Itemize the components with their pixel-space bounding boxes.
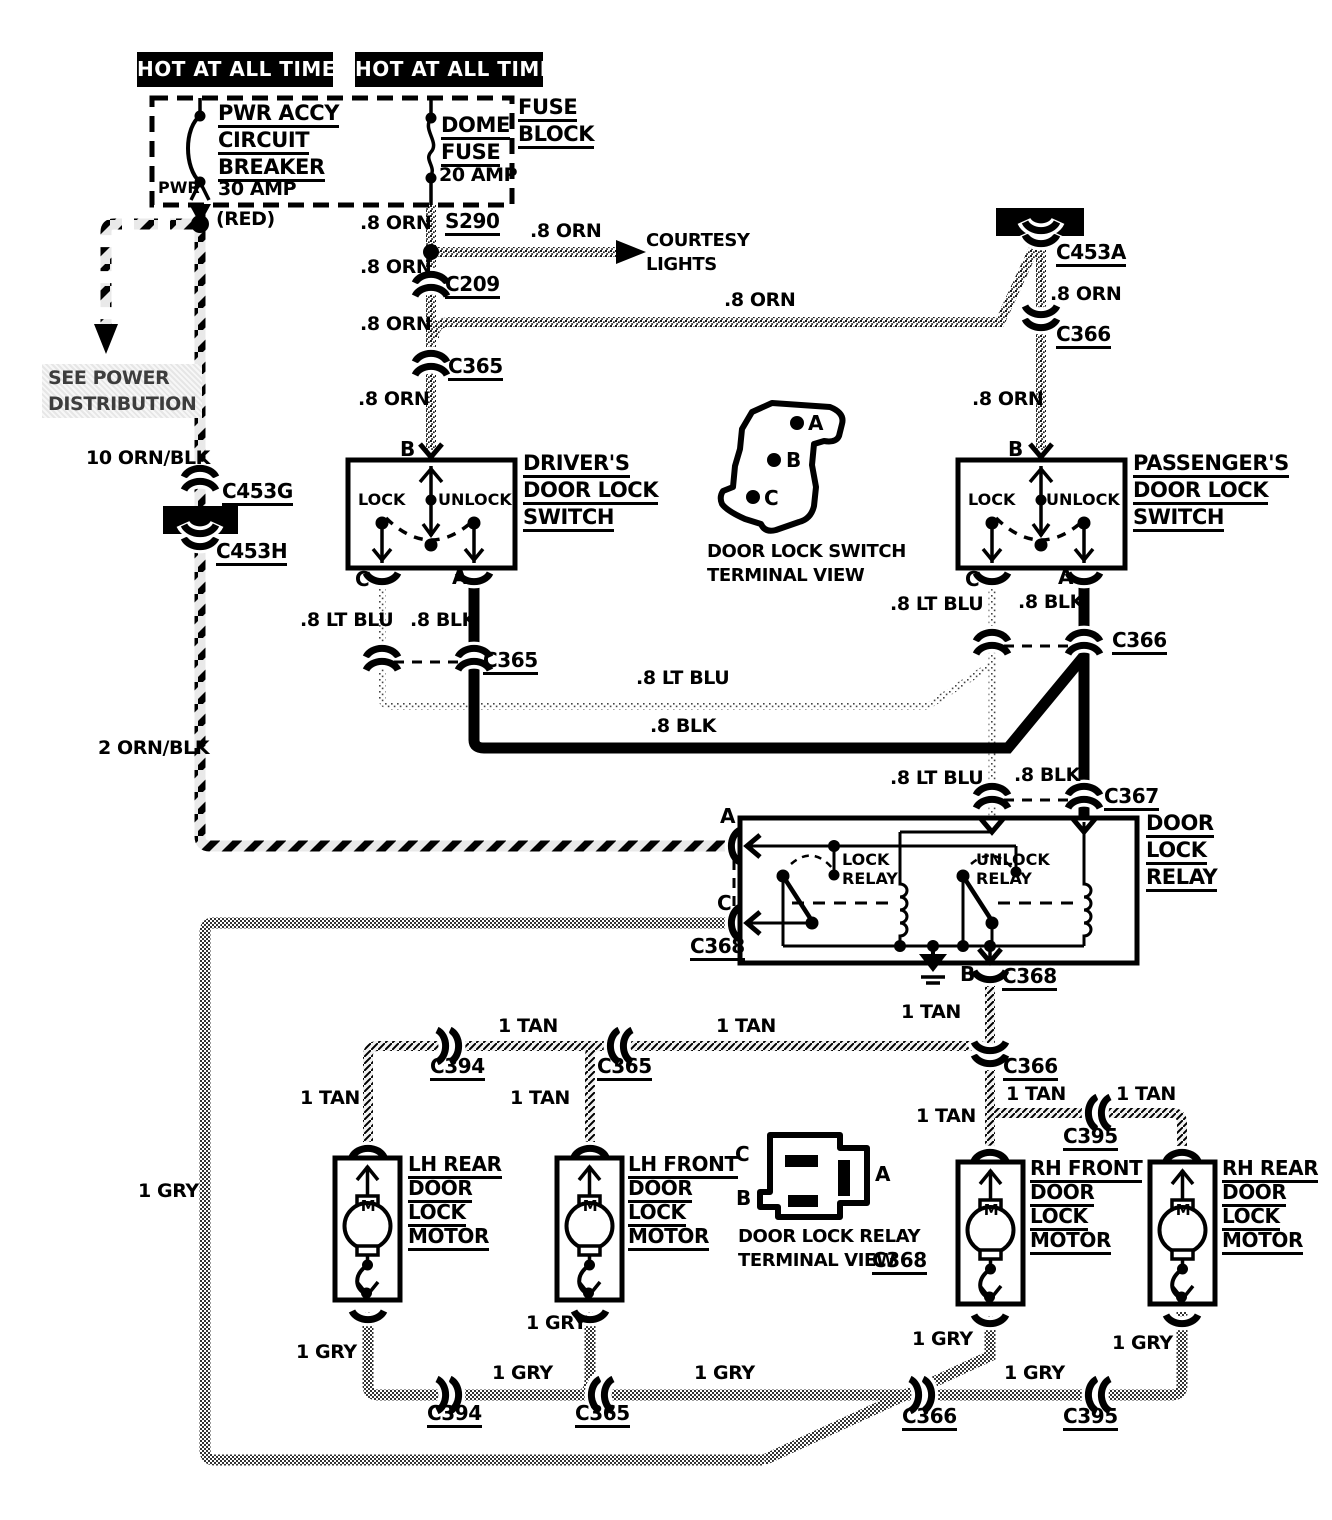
relay-terminal-b-text: B (960, 962, 975, 986)
wire-gry-6: 1 GRY (492, 1362, 553, 1384)
wire-gry-3-text: 1 GRY (526, 1312, 587, 1334)
connector-c453a-text: C453A (1056, 240, 1126, 267)
wire-blk-4: .8 BLK (1014, 764, 1080, 786)
unlock-relay-label: UNLOCKRELAY (976, 850, 1050, 888)
wire-tan-2-text: 1 TAN (498, 1015, 558, 1037)
lh-front-motor-label-text: MOTOR (628, 1224, 709, 1251)
wire-tan-2: 1 TAN (498, 1015, 558, 1037)
wire-gry-4: 1 GRY (912, 1328, 973, 1350)
wire-tan-5-text: 1 TAN (510, 1087, 570, 1109)
relay-terminal-b: B (960, 963, 975, 985)
rh-front-motor-label-text: LOCK (1030, 1204, 1088, 1231)
wire-tan-6-text: 1 TAN (916, 1105, 976, 1127)
drivers-lock-label: LOCK (358, 490, 405, 509)
connector-c453h: C453H (216, 540, 287, 562)
wire-tan-8: 1 TAN (1116, 1083, 1176, 1105)
passengers-lock-label-text: LOCK (968, 490, 1015, 509)
wire-orn-6-text: .8 ORN (358, 388, 429, 410)
wire-gry-8: 1 GRY (1004, 1362, 1065, 1384)
wire-blk-2: .8 BLK (650, 715, 716, 737)
pwr-label: PWR (158, 178, 200, 197)
wire-tan-7-text: 1 TAN (1006, 1083, 1066, 1105)
dome-fuse-label: DOMEFUSE (441, 112, 510, 166)
fuse-block-label-text: BLOCK (518, 122, 594, 149)
wire-tan-5: 1 TAN (510, 1087, 570, 1109)
lock-relay-label: LOCKRELAY (842, 850, 898, 888)
wire-orn-7: .8 ORN (1050, 283, 1121, 305)
connector-c395-gry-text: C395 (1063, 1404, 1118, 1431)
connector-c394-gry-text: C394 (427, 1401, 482, 1428)
relay-terminal-a: A (720, 805, 735, 827)
connector-c368-left-text: C368 (690, 934, 745, 961)
wire-orn-2: .8 ORN (530, 220, 601, 242)
wire-orn-7-text: .8 ORN (1050, 283, 1121, 305)
rh-rear-motor-label-text: LOCK (1222, 1204, 1280, 1231)
dome-fuse-rating-text: 20 AMP (439, 164, 517, 186)
lock-relay-label-text: RELAY (842, 869, 898, 888)
passengers-switch-label: PASSENGER'SDOOR LOCKSWITCH (1133, 450, 1289, 531)
drivers-switch-label-text: SWITCH (523, 505, 614, 532)
wire-gry-3: 1 GRY (526, 1312, 587, 1334)
connector-c394-tan-text: C394 (430, 1054, 485, 1081)
wiring-diagram-canvas (0, 0, 1332, 1520)
wire-ltblu-3-text: .8 LT BLU (890, 593, 983, 615)
passengers-terminal-c: C (965, 568, 979, 590)
terminal-view-b: B (786, 449, 801, 471)
hot-at-all-times-left-text: HOT AT ALL TIMES (137, 57, 351, 81)
door-lock-relay-label-text: LOCK (1146, 838, 1207, 865)
door-lock-relay (740, 818, 1137, 983)
door-lock-relay-label-text: DOOR (1146, 811, 1214, 838)
passengers-unlock-label: UNLOCK (1046, 490, 1120, 509)
lh-front-motor-m: M (581, 1195, 599, 1217)
terminal-view-c: C (764, 487, 778, 509)
wire-orn-8: .8 ORN (972, 388, 1043, 410)
wire-tan-3-text: 1 TAN (716, 1015, 776, 1037)
splice-s290: S290 (445, 210, 500, 232)
wire-tan-8-text: 1 TAN (1116, 1083, 1176, 1105)
lh-front-motor-m-text: M (583, 1197, 598, 1215)
wire-orn-5: .8 ORN (724, 289, 795, 311)
drivers-switch-label-text: DRIVER'S (523, 451, 630, 478)
drivers-terminal-a-text: A (452, 565, 467, 589)
wire-gry-7-text: 1 GRY (694, 1362, 755, 1384)
connector-c453g: C453G (222, 480, 293, 502)
lh-front-motor-label-text: LOCK (628, 1200, 686, 1227)
red-wire-note: (RED) (216, 208, 275, 230)
connector-c209-text: C209 (445, 272, 500, 299)
courtesy-lights-label-text: COURTESY (646, 230, 750, 251)
connector-c366-orn: C366 (1056, 323, 1111, 345)
connector-c366-tan: C366 (1003, 1055, 1058, 1077)
connector-c365-tan: C365 (597, 1055, 652, 1077)
wire-ltblu-4-text: .8 LT BLU (890, 767, 983, 789)
courtesy-lights-label-text: LIGHTS (646, 254, 717, 275)
terminal-view-a: A (808, 412, 823, 434)
wire-blk-3: .8 BLK (1018, 591, 1084, 613)
connector-c365-tan-text: C365 (597, 1054, 652, 1081)
wire-ltblu-4: .8 LT BLU (890, 767, 983, 789)
see-power-distribution: SEE POWERDISTRIBUTION (42, 364, 202, 418)
lh-front-door-lock-motor (557, 1158, 622, 1300)
relay-view-b: B (736, 1187, 751, 1209)
rh-front-motor-m-text: M (984, 1201, 999, 1219)
drivers-terminal-b: B (400, 438, 415, 460)
breaker-rating-text: 30 AMP (218, 178, 296, 200)
rh-front-motor-label-text: MOTOR (1030, 1228, 1111, 1255)
door-lock-switch-terminal-view (721, 403, 843, 531)
drivers-switch-label-text: DOOR LOCK (523, 478, 658, 505)
wire-gry-2-text: 1 GRY (296, 1341, 357, 1363)
fuse-block-label-text: FUSE (518, 95, 577, 122)
connector-c366-switch: C366 (1112, 629, 1167, 651)
lh-rear-motor-label-text: LOCK (408, 1200, 466, 1227)
passengers-terminal-b-text: B (1008, 437, 1023, 461)
connector-c453h-text: C453H (216, 539, 287, 566)
wire-tan-7: 1 TAN (1006, 1083, 1066, 1105)
wire-tan-1: 1 TAN (901, 1001, 961, 1023)
pwr-accy-breaker-label-text: PWR ACCY (218, 101, 339, 128)
wire-orn-5-text: .8 ORN (724, 289, 795, 311)
rh-front-door-lock-motor (958, 1162, 1023, 1304)
relay-terminal-view-c368-text: C368 (872, 1248, 927, 1275)
switch-terminal-view-caption-text: TERMINAL VIEW (707, 565, 864, 586)
rh-rear-door-lock-motor (1150, 1162, 1215, 1304)
relay-view-a-text: A (875, 1162, 890, 1186)
breaker-rating: 30 AMP (218, 178, 296, 200)
splice-s290-text: S290 (445, 209, 500, 236)
wire-ltblu-3: .8 LT BLU (890, 593, 983, 615)
connector-c365-switch: C365 (483, 649, 538, 671)
wire-orn-1-text: .8 ORN (360, 212, 431, 234)
terminal-view-b-text: B (786, 448, 801, 472)
wire-tan-6: 1 TAN (916, 1105, 976, 1127)
fuse-block-label: FUSEBLOCK (518, 94, 594, 148)
wire-gry-4-text: 1 GRY (912, 1328, 973, 1350)
wire-blk-3-text: .8 BLK (1018, 591, 1084, 613)
wire-blk-1-text: .8 BLK (410, 609, 476, 631)
relay-terminal-view-caption-1: DOOR LOCK RELAY (738, 1225, 920, 1249)
connector-c395-tan: C395 (1063, 1125, 1118, 1147)
passengers-terminal-a-text: A (1058, 565, 1073, 589)
wire-orn-1: .8 ORN (360, 212, 431, 234)
connector-c453a: C453A (1056, 241, 1126, 263)
wire-10-orn-blk: 10 ORN/BLK (86, 447, 210, 469)
rh-rear-motor-label-text: RH REAR (1222, 1156, 1318, 1183)
connector-c395-gry: C395 (1063, 1405, 1118, 1427)
wire-blk-4-text: .8 BLK (1014, 764, 1080, 786)
connector-c366-tan-text: C366 (1003, 1054, 1058, 1081)
switch-terminal-view-caption-text: DOOR LOCK SWITCH (707, 541, 906, 562)
rh-rear-motor-m-text: M (1176, 1201, 1191, 1219)
wire-orn-6: .8 ORN (358, 388, 429, 410)
passengers-lock-label: LOCK (968, 490, 1015, 509)
wire-2-orn-blk-text: 2 ORN/BLK (98, 737, 209, 759)
rh-front-motor-label: RH FRONTDOORLOCKMOTOR (1030, 1156, 1142, 1252)
connector-c394-gry: C394 (427, 1402, 482, 1424)
connector-c395-tan-text: C395 (1063, 1124, 1118, 1151)
connector-c365-gry: C365 (575, 1402, 630, 1424)
relay-terminal-c: C (717, 892, 731, 914)
relay-view-a: A (875, 1163, 890, 1185)
connector-c366-orn-text: C366 (1056, 322, 1111, 349)
drivers-terminal-c-text: C (355, 567, 369, 591)
drivers-lock-label-text: LOCK (358, 490, 405, 509)
terminal-view-a-text: A (808, 411, 823, 435)
wire-blk-2-text: .8 BLK (650, 715, 716, 737)
wire-orn-8-text: .8 ORN (972, 388, 1043, 410)
wire-orn-4-text: .8 ORN (360, 313, 431, 335)
terminal-view-c-text: C (764, 486, 778, 510)
wire-orn-2-text: .8 ORN (530, 220, 601, 242)
dome-fuse-label-text: FUSE (441, 140, 500, 167)
see-power-distribution-text: SEE POWER (48, 367, 169, 389)
lh-front-motor-label: LH FRONTDOORLOCKMOTOR (628, 1152, 738, 1248)
wire-tan-4-text: 1 TAN (300, 1087, 360, 1109)
wire-gry-7: 1 GRY (694, 1362, 755, 1384)
lh-rear-door-lock-motor (335, 1158, 400, 1300)
lh-front-motor-label-text: DOOR (628, 1176, 692, 1203)
passengers-switch-label-text: DOOR LOCK (1133, 478, 1268, 505)
hot-at-all-times-left: HOT AT ALL TIMES (137, 52, 333, 87)
connector-c453g-text: C453G (222, 479, 293, 506)
wire-2-orn-blk: 2 ORN/BLK (98, 737, 209, 759)
passengers-terminal-a: A (1058, 566, 1073, 588)
lh-rear-motor-label-text: LH REAR (408, 1152, 502, 1179)
wire-gry-8-text: 1 GRY (1004, 1362, 1065, 1384)
connector-c365-gry-text: C365 (575, 1401, 630, 1428)
see-power-distribution-text: DISTRIBUTION (48, 393, 196, 415)
wire-blk-1: .8 BLK (410, 609, 476, 631)
wire-gry-5: 1 GRY (1112, 1332, 1173, 1354)
pwr-accy-breaker-label: PWR ACCYCIRCUITBREAKER (218, 100, 339, 181)
wire-ltblu-2-text: .8 LT BLU (636, 667, 729, 689)
passengers-terminal-c-text: C (965, 567, 979, 591)
relay-view-c-text: C (735, 1142, 749, 1166)
door-lock-relay-label: DOORLOCKRELAY (1146, 810, 1217, 891)
door-lock-relay-label-text: RELAY (1146, 865, 1217, 892)
rh-front-motor-m: M (982, 1199, 1000, 1221)
wiring-diagram-page: HOT AT ALL TIMESHOT AT ALL TIMESFUSEBLOC… (0, 0, 1332, 1520)
passengers-terminal-b: B (1008, 438, 1023, 460)
drivers-terminal-b-text: B (400, 437, 415, 461)
connector-c367: C367 (1104, 785, 1159, 807)
wire-ltblu-2: .8 LT BLU (636, 667, 729, 689)
drivers-terminal-c: C (355, 568, 369, 590)
connector-c366-switch-text: C366 (1112, 628, 1167, 655)
passengers-switch-label-text: SWITCH (1133, 505, 1224, 532)
drivers-switch-label: DRIVER'SDOOR LOCKSWITCH (523, 450, 658, 531)
connector-c394-tan: C394 (430, 1055, 485, 1077)
wire-gry-1: 1 GRY (138, 1180, 199, 1202)
drivers-unlock-label-text: UNLOCK (438, 490, 512, 509)
passengers-switch-label-text: PASSENGER'S (1133, 451, 1289, 478)
drivers-unlock-label: UNLOCK (438, 490, 512, 509)
connector-c368-bottom-text: C368 (1002, 964, 1057, 991)
passengers-unlock-label-text: UNLOCK (1046, 490, 1120, 509)
drivers-terminal-a: A (452, 566, 467, 588)
door-lock-relay-terminal-view (760, 1135, 867, 1217)
lh-rear-motor-m: M (359, 1195, 377, 1217)
dome-fuse-label-text: DOME (441, 113, 510, 140)
hot-at-all-times-right-text: HOT AT ALL TIMES (355, 57, 569, 81)
pwr-label-text: PWR (158, 178, 200, 197)
wire-orn-4: .8 ORN (360, 313, 431, 335)
courtesy-lights-label: COURTESYLIGHTS (646, 229, 750, 277)
dome-fuse-rating: 20 AMP (439, 164, 517, 186)
pwr-accy-breaker-label-text: CIRCUIT (218, 128, 309, 155)
unlock-relay-label-text: RELAY (976, 869, 1032, 888)
wire-gry-2: 1 GRY (296, 1341, 357, 1363)
rh-rear-motor-label: RH REARDOORLOCKMOTOR (1222, 1156, 1318, 1252)
connector-c365-orn: C365 (448, 355, 503, 377)
wire-10-orn-blk-text: 10 ORN/BLK (86, 447, 210, 469)
lock-relay-label-text: LOCK (842, 850, 889, 869)
connector-c366-gry: C366 (902, 1405, 957, 1427)
connector-c366-gry-text: C366 (902, 1404, 957, 1431)
red-wire-note-text: (RED) (216, 208, 275, 230)
relay-terminal-view-c368: C368 (872, 1249, 927, 1271)
connector-c368-bottom: C368 (1002, 965, 1057, 987)
lh-rear-motor-label-text: MOTOR (408, 1224, 489, 1251)
relay-terminal-a-text: A (720, 804, 735, 828)
rh-rear-motor-label-text: MOTOR (1222, 1228, 1303, 1255)
connector-c367-text: C367 (1104, 784, 1159, 811)
unlock-relay-label-text: UNLOCK (976, 850, 1050, 869)
wire-ltblu-1-text: .8 LT BLU (300, 609, 393, 631)
lh-rear-motor-label-text: DOOR (408, 1176, 472, 1203)
rh-front-motor-label-text: DOOR (1030, 1180, 1094, 1207)
connector-c365-switch-text: C365 (483, 648, 538, 675)
wire-gry-6-text: 1 GRY (492, 1362, 553, 1384)
wire-gry-1-text: 1 GRY (138, 1180, 199, 1202)
relay-view-b-text: B (736, 1186, 751, 1210)
wire-tan-3: 1 TAN (716, 1015, 776, 1037)
hot-at-all-times-right: HOT AT ALL TIMES (355, 52, 543, 87)
wire-gry-5-text: 1 GRY (1112, 1332, 1173, 1354)
connector-c365-orn-text: C365 (448, 354, 503, 381)
rh-rear-motor-label-text: DOOR (1222, 1180, 1286, 1207)
relay-terminal-view-caption-1-text: DOOR LOCK RELAY (738, 1226, 920, 1247)
wire-tan-4: 1 TAN (300, 1087, 360, 1109)
switch-terminal-view-caption: DOOR LOCK SWITCHTERMINAL VIEW (707, 540, 906, 588)
lh-rear-motor-label: LH REARDOORLOCKMOTOR (408, 1152, 502, 1248)
wire-tan-1-text: 1 TAN (901, 1001, 961, 1023)
connector-c209: C209 (445, 273, 500, 295)
wire-orn-3: .8 ORN (360, 256, 431, 278)
wire-orn-3-text: .8 ORN (360, 256, 431, 278)
wire-ltblu-1: .8 LT BLU (300, 609, 393, 631)
relay-view-c: C (735, 1143, 749, 1165)
connector-c368-left: C368 (690, 935, 745, 957)
lh-rear-motor-m-text: M (361, 1197, 376, 1215)
lh-front-motor-label-text: LH FRONT (628, 1152, 738, 1179)
relay-terminal-c-text: C (717, 891, 731, 915)
rh-rear-motor-m: M (1174, 1199, 1192, 1221)
rh-front-motor-label-text: RH FRONT (1030, 1156, 1142, 1183)
